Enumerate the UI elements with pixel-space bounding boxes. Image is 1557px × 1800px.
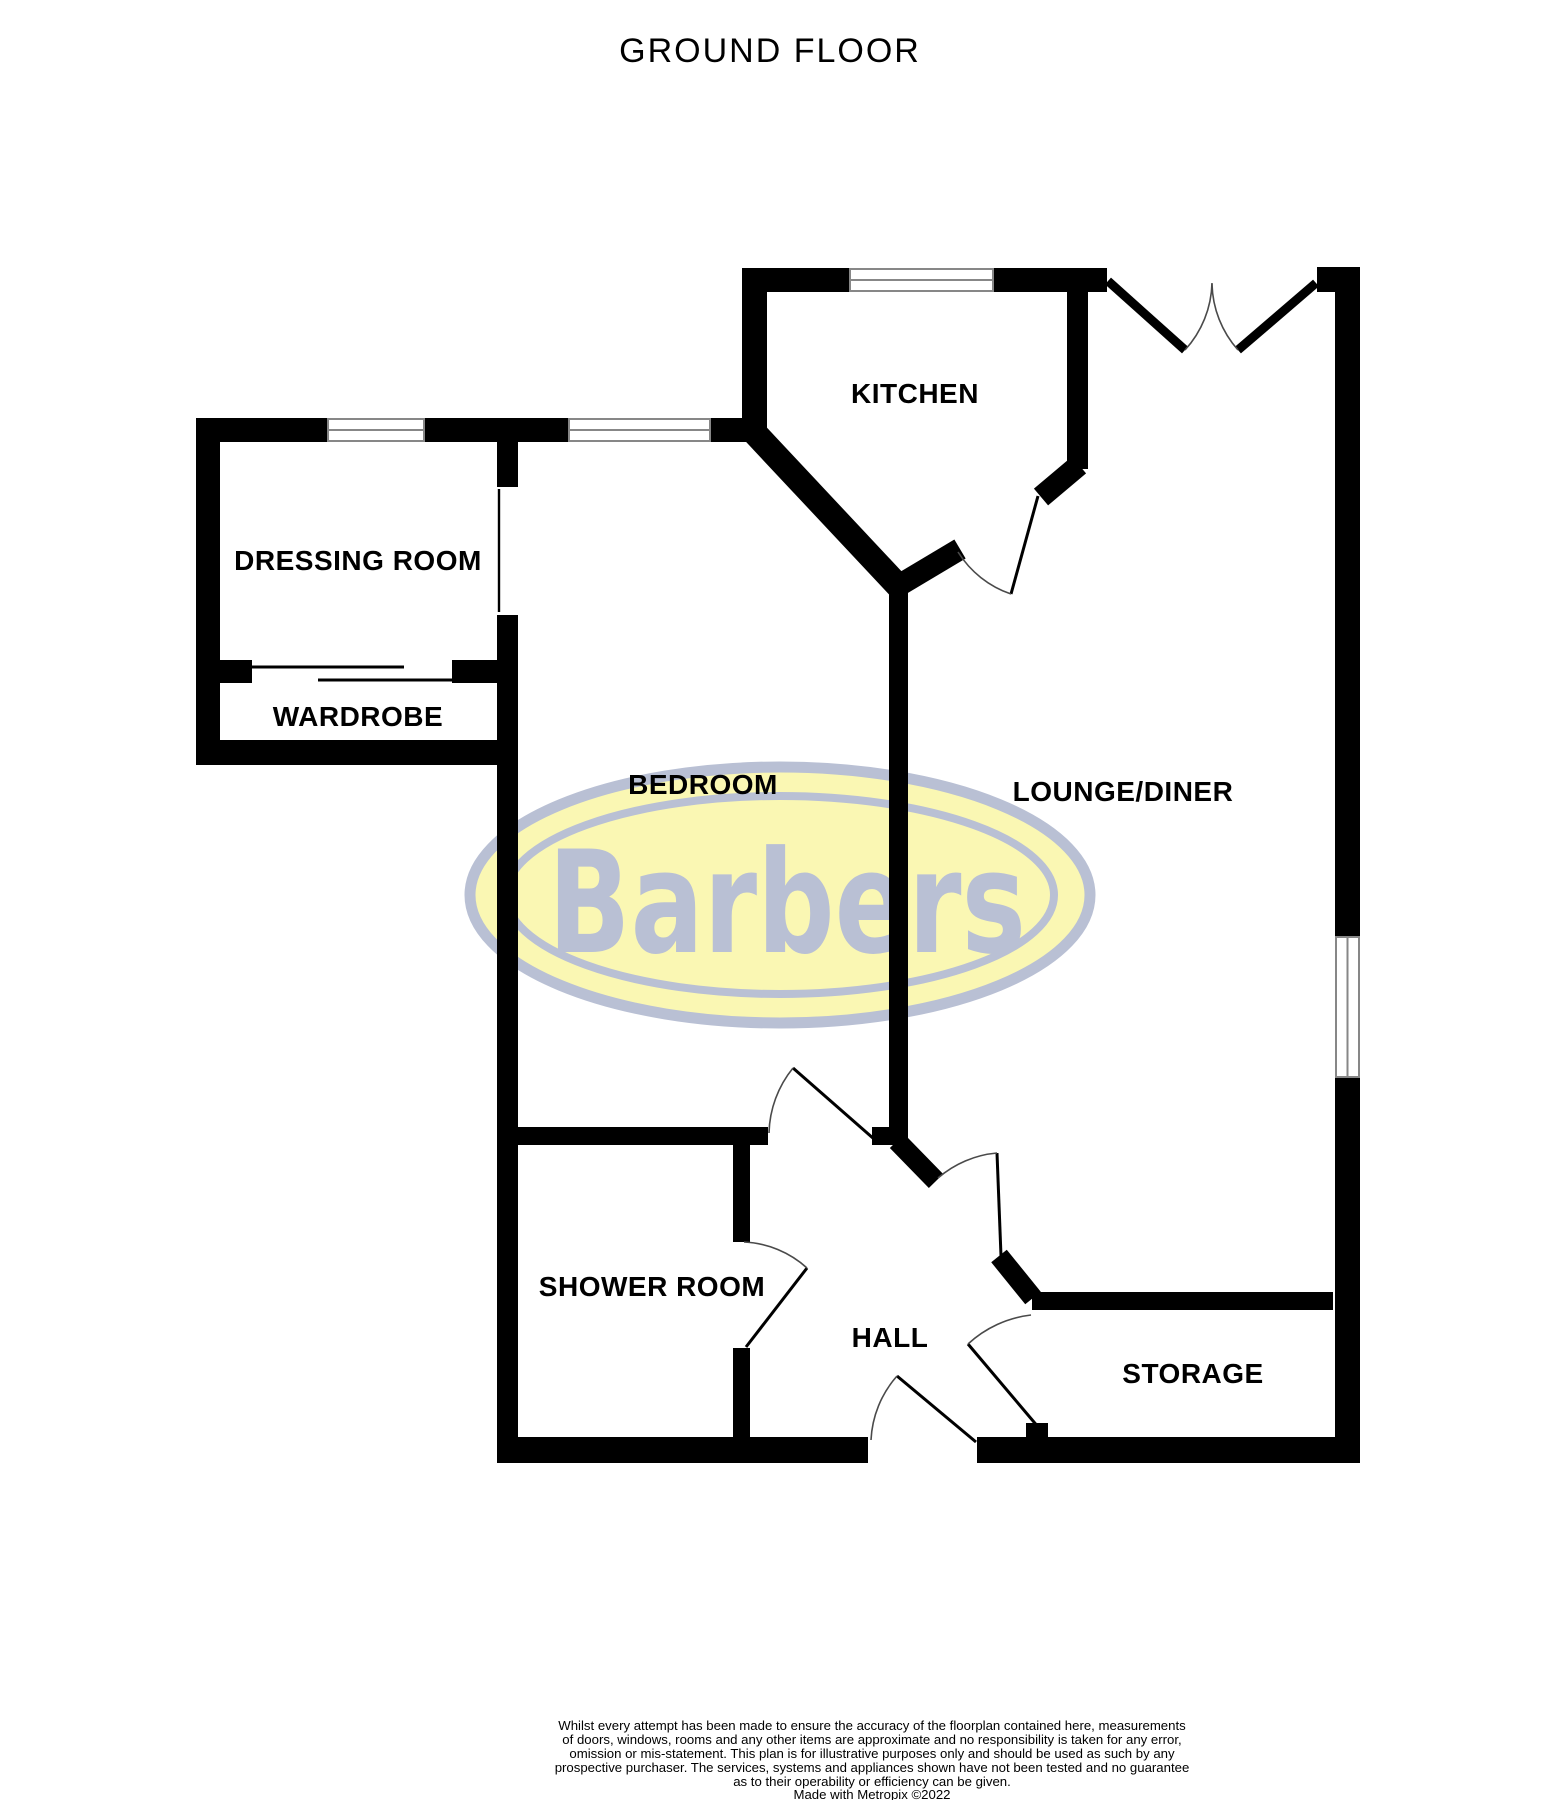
wall-dressing-door-pillar: [497, 418, 518, 487]
front-door: [871, 1376, 976, 1442]
room-label-lounge-diner: LOUNGE/DINER: [1013, 776, 1234, 807]
room-label-shower-room: SHOWER ROOM: [539, 1271, 765, 1302]
wall-wardrobe-bottom: [196, 740, 518, 765]
wall-kitchen-top-right: [993, 268, 1107, 292]
wall-kitchen-right: [1067, 292, 1088, 469]
wall-storage-top: [1032, 1292, 1333, 1310]
barbers-logo: Barbers: [470, 767, 1090, 1023]
wall-dressing-top-1: [196, 418, 328, 442]
wall-kitchen-door-jamb: [1041, 465, 1079, 497]
logo-wordmark: Barbers: [548, 821, 1026, 986]
wall-divider-diagonal-stub: [897, 1141, 936, 1181]
page-title: GROUND FLOOR: [619, 32, 921, 70]
wall-right-upper: [1335, 267, 1360, 937]
wall-lounge-door-jamb: [999, 1256, 1033, 1298]
room-label-dressing-room: DRESSING ROOM: [234, 545, 482, 576]
wall-kitchen-top-left: [742, 268, 850, 292]
kitchen-window: [850, 269, 993, 291]
disclaimer-line-3: omission or mis-statement. This plan is …: [569, 1746, 1175, 1761]
wall-right-lower: [1335, 1077, 1360, 1463]
french-doors-lounge: [1108, 281, 1316, 350]
wall-kitchen-diagonal: [752, 430, 901, 589]
room-label-wardrobe: WARDROBE: [273, 701, 443, 732]
wall-dressing-top-2: [424, 418, 569, 442]
kitchen-door: [958, 496, 1038, 594]
wall-shower-right-upper: [733, 1145, 750, 1242]
wardrobe-sliding-doors: [252, 667, 467, 680]
footer-disclaimer: Whilst every attempt has been made to en…: [555, 1718, 1190, 1800]
room-label-bedroom: BEDROOM: [628, 769, 778, 800]
wall-kitchen-left: [742, 268, 767, 438]
disclaimer-line-2: of doors, windows, rooms and any other i…: [562, 1732, 1181, 1747]
lounge-hall-door: [938, 1153, 1001, 1256]
disclaimer-credit: Made with Metropix ©2022: [793, 1787, 950, 1800]
disclaimer-line-4: prospective purchaser. The services, sys…: [555, 1760, 1190, 1775]
floorplan-drawing: GROUND FLOOR Barbers: [0, 0, 1557, 1800]
wall-bedroom-lounge-divider: [889, 575, 908, 1145]
room-label-kitchen: KITCHEN: [851, 378, 979, 409]
wall-bedroom-left: [497, 615, 518, 1463]
wall-bottom-right: [977, 1437, 1360, 1463]
lounge-window: [1336, 937, 1359, 1077]
wall-dressing-left: [196, 418, 220, 765]
dressing-room-window: [328, 419, 424, 441]
wall-wardrobe-top-left: [196, 660, 252, 683]
wall-bottom-left: [497, 1437, 868, 1463]
wall-shower-top: [497, 1127, 768, 1145]
disclaimer-line-1: Whilst every attempt has been made to en…: [558, 1718, 1186, 1733]
wall-shower-right-lower: [733, 1348, 750, 1440]
floorplan-page: GROUND FLOOR Barbers: [0, 0, 1557, 1800]
room-label-storage: STORAGE: [1122, 1358, 1263, 1389]
bedroom-window: [569, 419, 710, 441]
storage-door: [968, 1315, 1039, 1428]
room-label-hall: HALL: [852, 1322, 929, 1353]
bedroom-door: [769, 1068, 874, 1139]
